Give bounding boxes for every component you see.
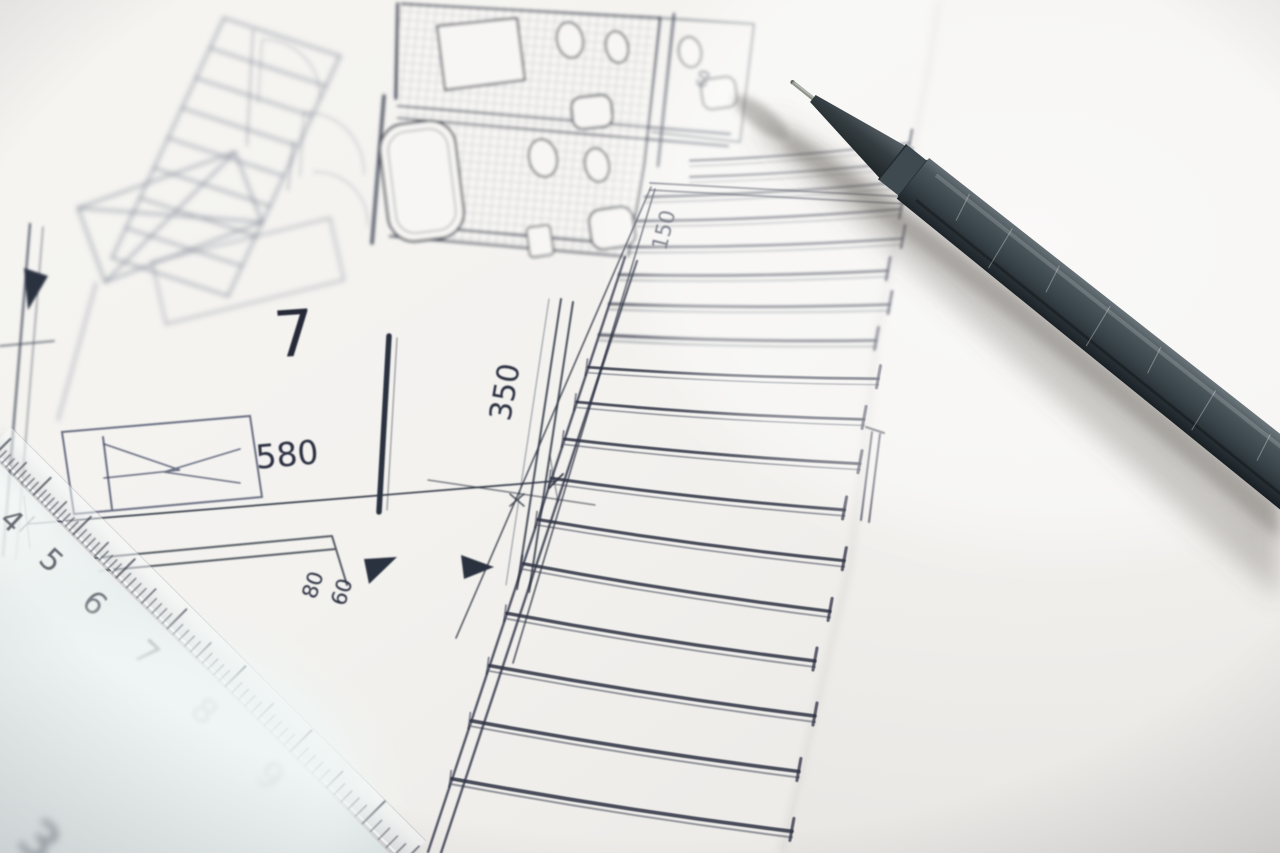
vignette bbox=[0, 0, 1280, 853]
scene-canvas: 60 7 580 350 80 60 bbox=[0, 0, 1280, 853]
photo-floorplan-scene: 60 7 580 350 80 60 bbox=[0, 0, 1280, 853]
